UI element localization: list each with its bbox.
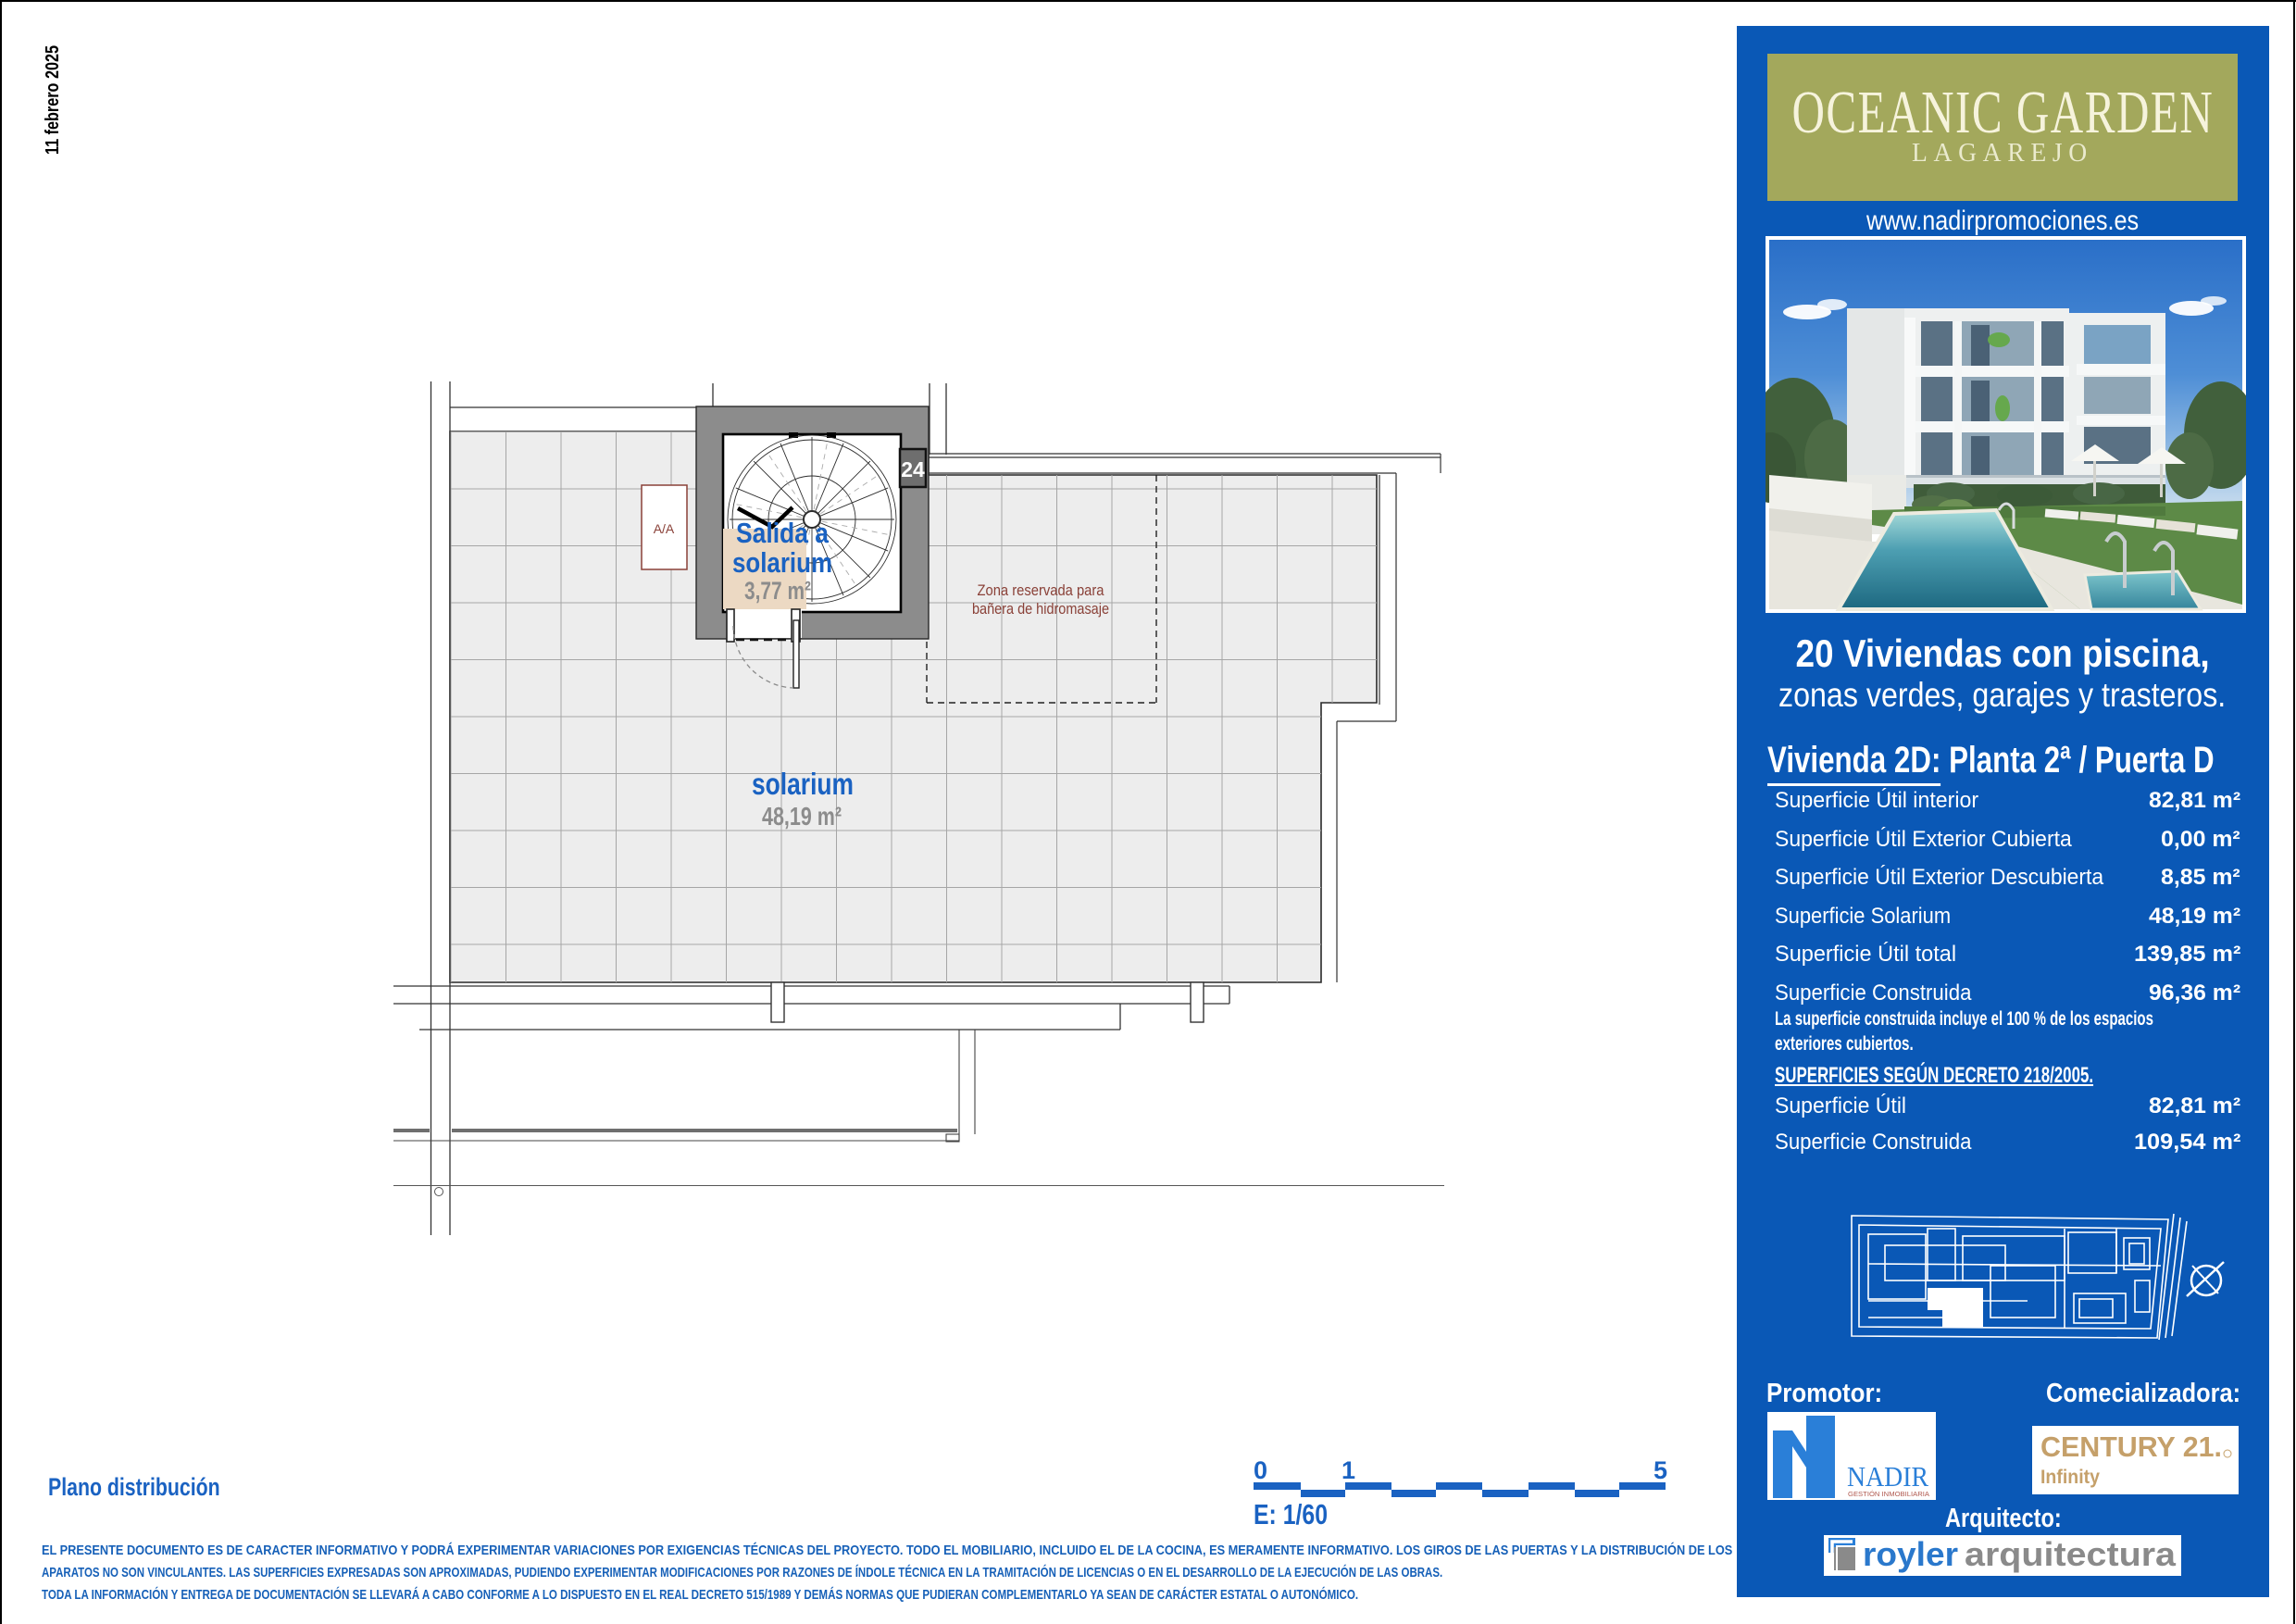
svg-text:arquitectura: arquitectura	[1965, 1535, 2177, 1573]
svg-text:E: 1/60: E: 1/60	[1254, 1498, 1328, 1530]
svg-text:royler: royler	[1863, 1535, 1958, 1573]
svg-text:5: 5	[1653, 1456, 1667, 1484]
svg-text:solarium: solarium	[752, 767, 854, 801]
svg-text:3,77 m²: 3,77 m²	[744, 577, 811, 605]
svg-text:48,19 m²: 48,19 m²	[762, 802, 842, 831]
svg-text:bañera de hidromasaje: bañera de hidromasaje	[972, 600, 1109, 618]
svg-text:Infinity: Infinity	[2040, 1467, 2100, 1488]
svg-text:Salida a: Salida a	[736, 517, 830, 549]
svg-text:0: 0	[1254, 1456, 1267, 1484]
svg-text:NADIR: NADIR	[1847, 1460, 1928, 1493]
svg-text:CENTURY 21.: CENTURY 21.	[2040, 1430, 2222, 1463]
svg-text:Zona reservada para: Zona reservada para	[978, 581, 1104, 599]
svg-text:A/A: A/A	[654, 521, 675, 536]
svg-text:24: 24	[901, 457, 925, 481]
svg-text:GESTIÓN INMOBILIARIA: GESTIÓN INMOBILIARIA	[1848, 1490, 1929, 1498]
svg-text:1: 1	[1341, 1456, 1355, 1484]
svg-text:solarium: solarium	[732, 546, 832, 579]
